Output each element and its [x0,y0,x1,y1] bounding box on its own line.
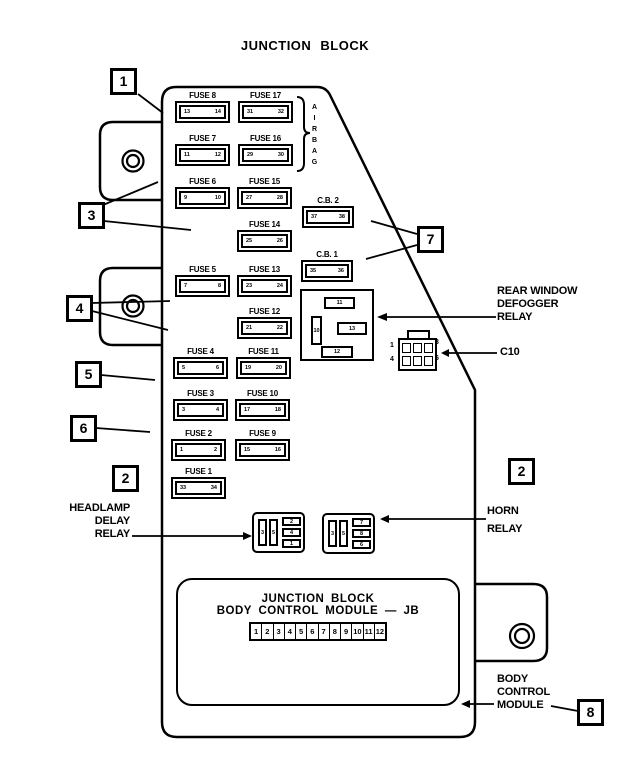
c10-connector: 1 3 4 6 [398,330,441,372]
callout-6: 6 [70,415,97,442]
panel-title-line2: BODY CONTROL MODULE — JB [178,605,458,617]
bcm-pin: 9 [340,624,351,639]
pin-number-6: 6 [435,355,439,362]
callout-2-right: 2 [508,458,535,485]
relay-terminal: 12 [321,346,353,358]
fuse-14: FUSE 142526 [237,220,292,252]
fuse-5: FUSE 578 [175,265,230,297]
mount-bracket-top-left [100,122,163,200]
arrowhead-left-icon [380,515,389,523]
bcm-pin: 3 [273,624,284,639]
relay-terminal: 4 [282,528,301,537]
relay-terminal: 6 [352,540,371,549]
relay-terminal: 7 [352,518,371,527]
connector-body [398,338,437,371]
relay-terminal: 11 [324,297,355,309]
arrowhead-left-icon [461,700,470,708]
fuse-9: FUSE 91516 [235,429,290,461]
bcm-pin-strip: 1 2 3 4 5 6 7 8 9 10 11 12 [249,622,387,641]
pin-number-4: 4 [390,356,394,363]
relay-terminal: 1 [282,539,301,548]
bcm-pin: 12 [374,624,385,639]
fuse-13: FUSE 132324 [237,265,292,297]
bcm-pin: 6 [306,624,317,639]
fuse-10: FUSE 101718 [235,389,290,421]
relay-terminal: 5 [339,520,348,547]
bcm-pin: 10 [351,624,362,639]
arrowhead-right-icon [243,532,252,540]
fuse-2: FUSE 212 [171,429,226,461]
bcm-pin: 7 [318,624,329,639]
callout-1: 1 [110,68,137,95]
arrowhead-left-icon [441,349,449,357]
pin-number-3: 3 [435,339,439,346]
fuse-17: FUSE 173132 [238,91,293,123]
bcm-pin: 1 [251,624,261,639]
horn-relay-label: HORNRELAY [487,502,522,538]
rear-window-defogger-relay-block: 11 10 13 12 [300,289,374,361]
relay-terminal: 3 [258,519,267,546]
fuse-1: FUSE 13334 [171,467,226,499]
horn-relay-block: 3 5 7 8 6 [322,513,375,554]
bcm-pin: 5 [295,624,306,639]
connector-pin [424,356,433,366]
connector-pin [402,343,411,353]
relay-terminal: 3 [328,520,337,547]
fuse-11: FUSE 111920 [236,347,291,379]
fuse-12: FUSE 122122 [237,307,292,339]
connector-pin [402,356,411,366]
mount-bracket-bottom-right [474,584,547,661]
fuse-16: FUSE 162930 [238,134,293,166]
callout-5: 5 [75,361,102,388]
bcm-pin: 2 [261,624,272,639]
rear-window-defogger-relay-label: REAR WINDOWDEFOGGERRELAY [497,285,577,324]
c10-label: C10 [500,346,520,359]
relay-terminal: 2 [282,517,301,526]
fuse-4: FUSE 456 [173,347,228,379]
connector-pin [413,343,422,353]
bcm-pin: 8 [329,624,340,639]
pin-number-1: 1 [390,342,394,349]
fuse-15: FUSE 152728 [237,177,292,209]
relay-terminal: 8 [352,529,371,538]
body-control-module-label: BODYCONTROLMODULE [497,673,550,712]
junction-block-diagram: JUNCTION BLOCK 1 3 4 5 6 2 7 2 8 AIR BAG… [0,0,640,777]
bcm-pin: 4 [284,624,295,639]
callout-2-left: 2 [112,465,139,492]
relay-terminal: 5 [269,519,278,546]
relay-terminal: 13 [337,322,367,335]
headlamp-delay-relay-label: HEADLAMPDELAYRELAY [40,502,130,541]
page-title: JUNCTION BLOCK [225,38,385,53]
circuit-breaker-2: C.B. 23738 [302,196,354,228]
callout-4: 4 [66,295,93,322]
panel-title-line1: JUNCTION BLOCK [178,593,458,605]
connector-pin [424,343,433,353]
body-control-module-panel: JUNCTION BLOCK BODY CONTROL MODULE — JB … [176,578,460,706]
connector-pin [413,356,422,366]
fuse-8: FUSE 81314 [175,91,230,123]
arrowhead-left-icon [377,313,387,321]
relay-terminal: 10 [311,316,322,345]
headlamp-delay-relay-block: 3 5 2 4 1 [252,512,305,553]
mount-bracket-mid-left [100,268,163,345]
callout-8: 8 [577,699,604,726]
airbag-vertical-label: AIR BAG [308,102,321,168]
callout-7: 7 [417,226,444,253]
fuse-3: FUSE 334 [173,389,228,421]
bcm-pin: 11 [363,624,374,639]
fuse-7: FUSE 71112 [175,134,230,166]
fuse-6: FUSE 6910 [175,177,230,209]
circuit-breaker-1: C.B. 13536 [301,250,353,282]
callout-3: 3 [78,202,105,229]
